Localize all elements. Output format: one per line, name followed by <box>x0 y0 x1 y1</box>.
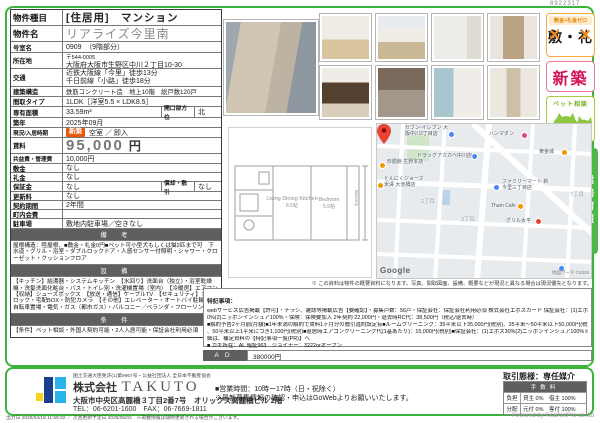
logo-navy-block <box>44 377 53 403</box>
floor-plan: Living Dining Kitchen 8.5帖 Bedroom 5.5帖 … <box>228 127 372 278</box>
row-label-2: 開口部方位 <box>161 107 195 117</box>
built-year: 2025年09月 <box>63 118 221 127</box>
row-label: 物件名 <box>11 26 63 41</box>
row-label: 築年 <box>11 118 63 127</box>
rent-amount: 95,000 <box>66 137 124 154</box>
rent-unit: 円 <box>129 137 141 154</box>
living-window-photo-image <box>378 16 425 59</box>
remarks-text: 屋根構造：陸屋根、■敷金・礼金0円■ペット可小型犬もしくは猫2匹まで可 下水道・… <box>11 241 221 265</box>
map-poi-label: ドラッグアカカベ中川店 <box>417 154 472 160</box>
table-row: 敷金 なし <box>11 164 221 173</box>
row-label: 物件種目 <box>11 10 63 25</box>
photo-living-window <box>375 13 428 62</box>
access-line-2: 千日前線「小路」徒歩18分 <box>66 78 218 86</box>
access-line-1: 近鉄大阪線「今里」徒歩13分 <box>66 70 218 78</box>
district-label: 3丁目 <box>461 215 475 223</box>
row-label: 号室名 <box>11 42 63 52</box>
zero-deposit-badge: 敷金+礼金ゼロ 敷・礼 × × <box>546 13 595 57</box>
zero-deposit-label: 敷金+礼金ゼロ <box>549 16 592 25</box>
row-label-2: 償却・敷引 <box>161 182 195 191</box>
map-poi-marker <box>377 182 384 189</box>
parking: 敷地内駐車場／空きなし <box>63 219 221 228</box>
equipment-header: 設 備 <box>11 265 221 277</box>
new-construction-badge: 新築 <box>546 61 595 92</box>
special-notes-line: 0%(2)ニッポンインシュア100%・保険：保険要加入 2年契約 22,000円… <box>207 315 588 322</box>
logo-yellow-block <box>36 393 43 401</box>
row-label: 更新料 <box>11 192 63 200</box>
map-streets <box>377 124 592 279</box>
toilet-photo-image <box>434 68 481 117</box>
district-label: 2丁目 <box>421 197 435 205</box>
document-id: 8922317 <box>550 1 580 7</box>
structure: 鉄筋コンクリート造 地上10階 総戸数120戸 <box>63 87 221 96</box>
photo-bathroom <box>375 65 428 120</box>
deposit: なし <box>63 164 221 172</box>
vacancy-status: 空室 ／ 即入 <box>89 128 128 138</box>
closet-photo-image <box>434 16 481 59</box>
property-location-pin <box>377 124 391 144</box>
photo-closet <box>431 13 484 62</box>
bedroom-size: 5.5帖 <box>323 203 335 210</box>
room-number: 0909 （9階部分） <box>63 42 221 52</box>
contract-period: 2年間 <box>63 201 221 209</box>
current-status: 新築 空室 ／ 即入 <box>63 128 221 137</box>
map-poi-label: 珍膳館 生野本店 <box>387 160 427 166</box>
special-notes-line: 、50平米以上1平米につき1,100円(税別)■退居時エアコンクリーニング代(1… <box>207 329 588 336</box>
new-construction-label: 新築 <box>552 65 588 89</box>
commission-row: 負担 貸主 0% 借主 100% <box>504 392 586 403</box>
cross-icon: × <box>549 25 561 47</box>
map-poi-marker <box>471 153 478 160</box>
location-map: セブン-イレブン 大阪中川3丁目店 ハンマダン ドラッグアカカベ中川店 黄金城 … <box>376 123 592 279</box>
map-disclaimer: ※ この資料は物件の概要資料になります。写真、間取図面、設備、概要などが現況と異… <box>240 280 592 287</box>
property-table: 物件種目 [住居用] マンション 物件名 リアライズ今里南 号室名 0909 （… <box>10 9 222 338</box>
kitchen-photo-image <box>322 68 369 117</box>
commission-header: 手数料 <box>504 382 586 392</box>
exterior-photo-image <box>226 22 316 113</box>
map-poi-marker <box>379 162 386 169</box>
table-row: 建築構造 鉄筋コンクリート造 地上10階 総戸数120戸 <box>11 87 221 97</box>
map-poi-marker <box>493 184 500 191</box>
property-name: リアライズ今里南 <box>63 26 221 41</box>
conditions-text: 【条件】ペット相談・外国人契約可能・2人入居可能・保証会社利用必須 <box>11 326 221 336</box>
bedroom-label: Bedroom <box>319 197 339 203</box>
photo-exterior <box>223 19 319 116</box>
map-attribution: 地図データ ©2025 <box>552 270 589 276</box>
layout-type: 1LDK［洋室5.5 × LDK8.5］ <box>63 97 221 106</box>
table-row: 交通 近鉄大阪線「今里」徒歩13分 千日前線「小路」徒歩18分 <box>11 69 221 87</box>
address: 〒544-0005 大阪府大阪市生野区中川２丁目10-30 <box>63 53 221 68</box>
row-label: 間取タイプ <box>11 97 63 106</box>
table-row: 更新料 なし <box>11 192 221 201</box>
logo-cyan-block <box>55 377 66 389</box>
pet-friendly-label: ペット相談 <box>547 99 594 108</box>
property-type: [住居用] マンション <box>63 10 221 25</box>
table-row: 物件名 リアライズ今里南 <box>11 26 221 42</box>
row-label: 所在地 <box>11 53 63 68</box>
row-label: 契約期間 <box>11 201 63 209</box>
special-notes-line: ■ カギ所在：AL 暗証963 ジョイナー：3222orオープン <box>207 343 588 350</box>
map-poi-label: 黄金城 <box>539 150 563 156</box>
company-logo <box>36 375 66 405</box>
photo-living <box>319 13 372 62</box>
neighborhood-fee <box>63 210 221 218</box>
row-label: 建築構造 <box>11 87 63 96</box>
output-date-note: 出力日 2025/04/18 11:59:32 ／ 次回更新予定日 2025/0… <box>6 414 242 421</box>
photo-kitchen <box>319 65 372 120</box>
table-row: 駐車場 敷地内駐車場／空きなし <box>11 219 221 229</box>
amortization: なし <box>195 182 221 191</box>
map-poi-marker <box>517 203 524 210</box>
map-poi-label: Tham Cafe <box>491 204 517 210</box>
balcony-label: Balcony <box>354 190 359 207</box>
shiki-rei-crossed: 敷・礼 × × <box>547 26 594 48</box>
company-tel-fax: TEL：06-6201-1600 FAX：06-7669-1811 <box>73 404 207 414</box>
table-row: 物件種目 [住居用] マンション <box>11 10 221 26</box>
table-row: 築年 2025年09月 <box>11 118 221 128</box>
floor-area: 33.59m² <box>63 107 161 117</box>
table-row: 賃料 95,000 円 <box>11 138 221 154</box>
new-construction-row-badge: 新築 <box>66 128 85 137</box>
map-poi-marker <box>535 218 542 225</box>
company-name: 株式会社 TAKUTO <box>73 378 200 396</box>
photo-hallway <box>487 13 540 62</box>
commission-table: 手数料 負担 貸主 0% 借主 100% 分配 元付 0% 客付 100% <box>503 381 587 415</box>
row-label: 現況/入居時期 <box>11 128 63 137</box>
living-photo-image <box>322 16 369 59</box>
photo-toilet <box>431 65 484 120</box>
company-name-en: TAKUTO <box>121 379 199 395</box>
ad-label: AD <box>203 350 247 361</box>
table-row: 保証金 なし 償却・敷引 なし <box>11 182 221 192</box>
powered-by: Powered by RealNetPro co.,ltd <box>512 413 594 419</box>
map-poi-label: ファミリーマート 新今里三丁目店 <box>502 180 550 191</box>
table-row: 契約期間 2年間 <box>11 201 221 210</box>
ad-amount: 380000円 <box>247 350 592 361</box>
map-poi-label: とんにくジョーズ 米澤 大池橋店 <box>384 177 424 188</box>
table-row: 所在地 〒544-0005 大阪府大阪市生野区中川２丁目10-30 <box>11 53 221 69</box>
google-logo: Google <box>380 266 411 275</box>
special-notes-title: 特記事項： <box>207 299 236 305</box>
map-poi-label: グリル太平 <box>506 219 536 225</box>
ldk-size: 8.5帖 <box>286 202 298 209</box>
table-row: 共益費・管理費 10,000円 <box>11 154 221 164</box>
row-label: 交通 <box>11 69 63 86</box>
map-poi-label: セブン-イレブン 大阪中川3丁目店 <box>405 126 449 137</box>
ad-fee-bar: AD 380000円 <box>203 350 592 361</box>
company-name-prefix: 株式会社 <box>73 382 117 394</box>
property-flyer: 8922317 物件種目 [住居用] マンション 物件名 リアライズ今里南 号室… <box>0 0 600 423</box>
commission-key: 負担 <box>504 393 521 403</box>
row-label: 町内会費 <box>11 210 63 218</box>
row-label: 敷金 <box>11 164 63 172</box>
district-label: 7丁目 <box>570 190 584 198</box>
postal-code: 〒544-0005 <box>66 54 218 62</box>
rent: 95,000 円 <box>63 138 221 153</box>
map-poi-marker <box>448 131 455 138</box>
guarantee-money: なし <box>63 182 161 191</box>
management-fee: 10,000円 <box>63 154 221 163</box>
row-label: 礼金 <box>11 173 63 181</box>
row-label: 保証金 <box>11 182 63 191</box>
conditions-header: 条 件 <box>11 314 221 326</box>
ldk-label: Living Dining Kitchen <box>266 196 317 202</box>
table-row: 号室名 0909 （9階部分） <box>11 42 221 53</box>
equipment-text: 【キッチン】給湯器・システムキッチン 【水回り】洗面台（独立）・浴室乾燥機・洗髪… <box>11 277 221 314</box>
special-notes-line: webサービス広告掲載【許可】・チラシ、雑誌等掲載広告【要確認】・募集戸数：56… <box>207 308 588 315</box>
bathroom-photo-image <box>378 68 425 117</box>
commission-value: 貸主 0% 借主 100% <box>521 393 586 403</box>
opening-direction: 北 <box>195 107 221 117</box>
table-row: 専有面積 33.59m² 開口部方位 北 <box>11 107 221 118</box>
sep-dot: ・ <box>563 29 578 45</box>
row-label: 駐車場 <box>11 219 63 228</box>
logo-cyan-block <box>55 391 66 403</box>
floor-plan-drawing: Living Dining Kitchen 8.5帖 Bedroom 5.5帖 … <box>229 128 371 277</box>
key-money: なし <box>63 173 221 181</box>
application-note: ※最新募集情報の確認・申込はGoWebよりお願いいたします。 <box>215 393 413 403</box>
renewal-fee: なし <box>63 192 221 200</box>
cross-icon: × <box>580 25 592 47</box>
special-notes-line: 細は、補足資料の【特記事項一覧(PR)】へ <box>207 336 588 343</box>
photo-washroom <box>487 65 540 120</box>
remarks-header: 備 考 <box>11 229 221 241</box>
row-label: 賃料 <box>11 138 63 153</box>
special-notes-line: ■解約予告2ヶ月前(月額)■1年未満の解約で賃料1ヶ月分の敷引違約設定有■ルーム… <box>207 322 588 329</box>
row-label: 共益費・管理費 <box>11 154 63 163</box>
access: 近鉄大阪線「今里」徒歩13分 千日前線「小路」徒歩18分 <box>63 69 221 86</box>
row-label: 専有面積 <box>11 107 63 117</box>
washroom-photo-image <box>490 68 537 117</box>
map-poi-label: ハンマダン <box>489 132 523 138</box>
hallway-photo-image <box>490 16 537 59</box>
special-notes-box: 特記事項： webサービス広告掲載【許可】・チラシ、雑誌等掲載広告【要確認】・募… <box>203 288 592 347</box>
